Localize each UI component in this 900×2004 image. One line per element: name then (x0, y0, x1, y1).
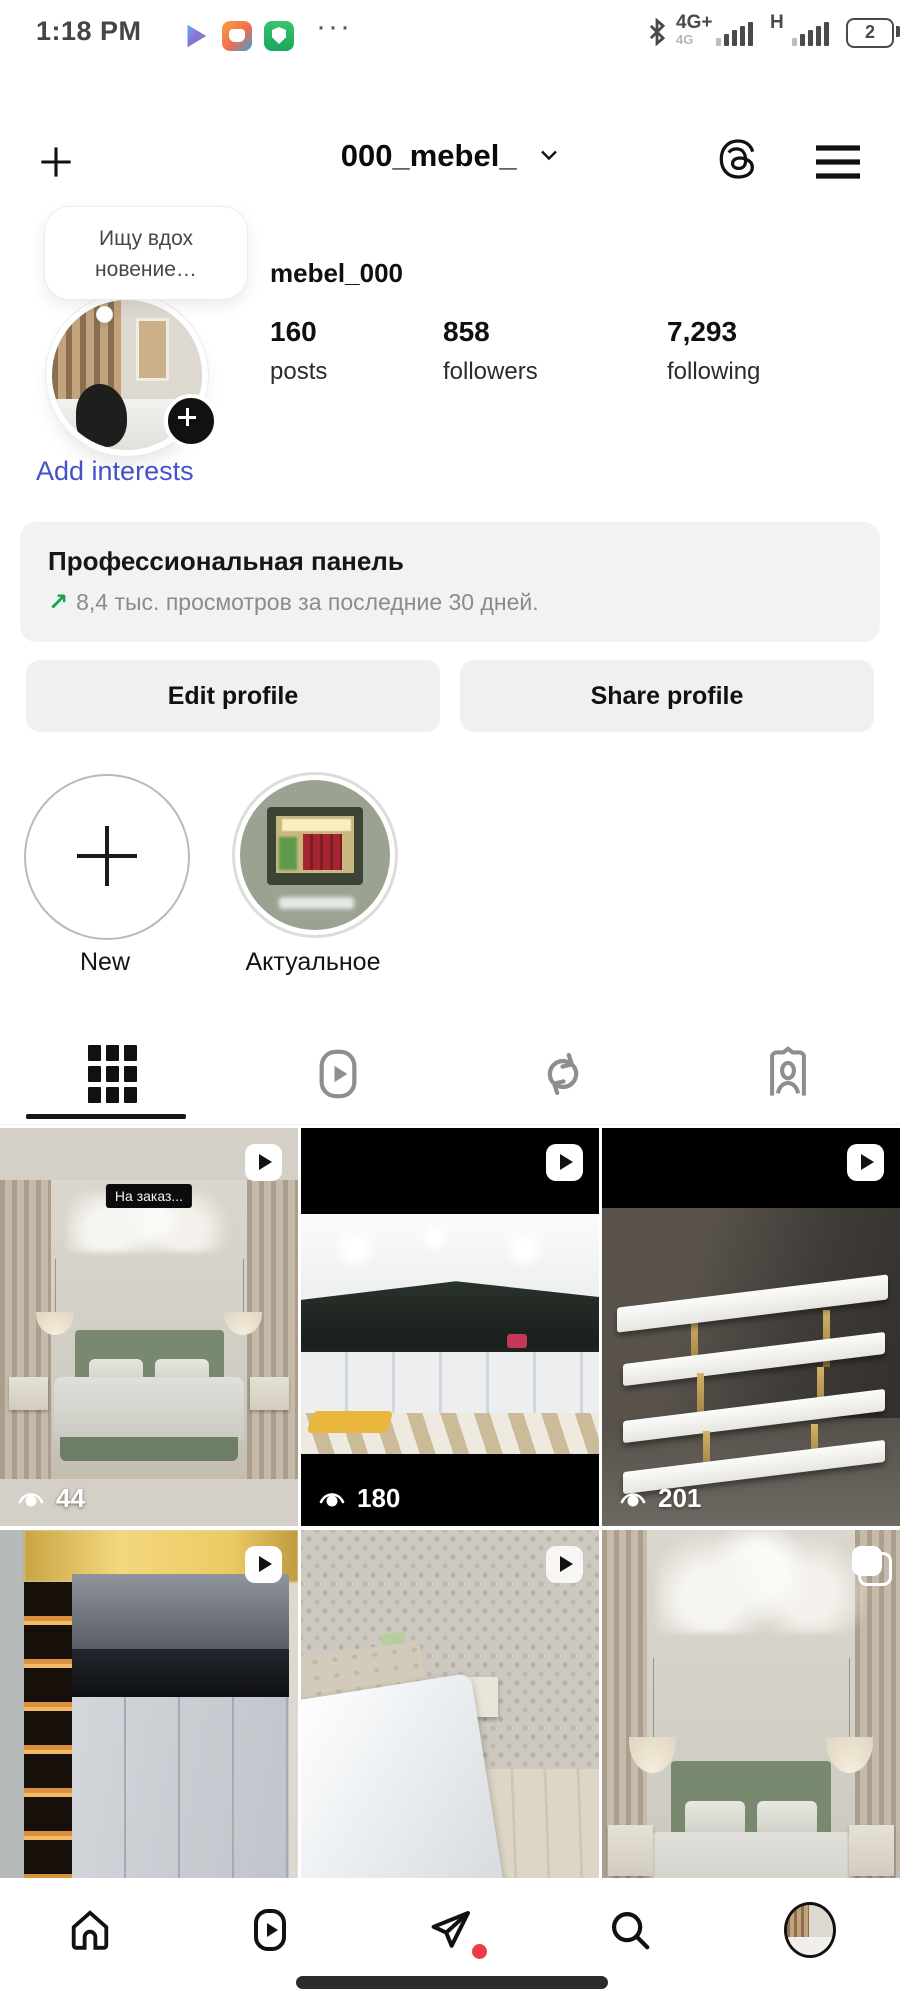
highlight-cover-image (240, 780, 390, 930)
tab-reposts[interactable] (450, 1034, 675, 1114)
play-store-icon (180, 21, 210, 51)
tab-tagged[interactable] (675, 1034, 900, 1114)
play-badge-icon (546, 1546, 583, 1583)
nav-search[interactable] (604, 1904, 656, 1956)
nav-share[interactable] (424, 1904, 476, 1956)
signal-bars-secondary (792, 22, 829, 46)
nav-reels[interactable] (244, 1904, 296, 1956)
status-bar: 1:18 PM ··· 4G+4G H 2 (0, 0, 900, 62)
note-bubble-tail (96, 306, 113, 323)
hamburger-menu-icon[interactable] (812, 142, 864, 182)
battery-icon: 2 (846, 18, 894, 48)
carousel-badge-icon (852, 1546, 884, 1578)
post-tile[interactable] (0, 1530, 298, 1928)
new-highlight-button[interactable] (24, 774, 190, 940)
highlight-label-new: New (24, 948, 186, 977)
active-tab-indicator (26, 1114, 186, 1119)
highlight-aktualnoe[interactable] (232, 772, 398, 938)
highlight-label-aktualnoe: Актуальное (218, 948, 408, 977)
tab-grid[interactable] (0, 1034, 225, 1114)
network-type-primary: 4G+4G (676, 14, 712, 48)
share-profile-button[interactable]: Share profile (460, 660, 874, 732)
clock: 1:18 PM (36, 16, 142, 47)
edit-profile-button[interactable]: Edit profile (26, 660, 440, 732)
reels-icon (248, 1906, 292, 1954)
notification-overflow-icon: ··· (316, 10, 352, 44)
content-tabs (0, 1034, 900, 1124)
post-image (602, 1208, 900, 1526)
display-username: mebel_000 (270, 258, 403, 289)
eye-icon (16, 1487, 46, 1511)
bottom-navigation-bar (0, 1878, 900, 2004)
play-badge-icon (245, 1144, 282, 1181)
repost-icon (536, 1046, 590, 1102)
page-title: 000_mebel_ (341, 138, 517, 173)
search-icon (607, 1907, 653, 1953)
stat-followers[interactable]: 858 followers (443, 316, 538, 386)
stat-posts[interactable]: 160 posts (270, 316, 327, 386)
view-count: 180 (317, 1483, 400, 1514)
post-image (301, 1530, 599, 1928)
gesture-bar[interactable] (296, 1976, 608, 1989)
panel-title: Профессиональная панель (48, 546, 404, 577)
eye-icon (317, 1487, 347, 1511)
professional-dashboard-card[interactable]: Профессиональная панель ↗8,4 тыс. просмо… (20, 522, 880, 642)
profile-avatar (784, 1902, 836, 1958)
post-image (301, 1214, 599, 1454)
note-line-2: новение… (55, 254, 237, 285)
divider (0, 1124, 900, 1125)
instagram-profile-screen: 1:18 PM ··· 4G+4G H 2 000_mebel_ (0, 0, 900, 2004)
chevron-down-icon (539, 148, 559, 162)
post-tile[interactable] (301, 1530, 599, 1928)
nav-home[interactable] (64, 1904, 116, 1956)
threads-icon[interactable] (714, 136, 760, 182)
play-badge-icon (847, 1144, 884, 1181)
play-badge-icon (245, 1546, 282, 1583)
post-tile[interactable]: 201 (602, 1128, 900, 1526)
view-count: 201 (618, 1483, 701, 1514)
profile-account-switcher[interactable]: 000_mebel_ (0, 138, 900, 174)
stat-following[interactable]: 7,293 following (667, 316, 760, 386)
network-type-secondary: H (770, 12, 784, 34)
post-tile[interactable] (602, 1530, 900, 1928)
post-tile[interactable]: На заказ... 44 (0, 1128, 298, 1526)
bluetooth-icon (646, 18, 668, 46)
share-icon (426, 1906, 474, 1954)
play-badge-icon (546, 1144, 583, 1181)
panel-subtitle: ↗8,4 тыс. просмотров за последние 30 дне… (48, 588, 539, 617)
add-interests-link[interactable]: Add interests (36, 456, 194, 487)
profile-note-bubble[interactable]: Ищу вдох новение… (44, 206, 248, 300)
post-image (602, 1530, 900, 1928)
signal-bars-primary (716, 22, 753, 46)
eye-icon (618, 1487, 648, 1511)
reels-icon (312, 1046, 364, 1102)
post-tile[interactable]: 180 (301, 1128, 599, 1526)
post-caption-overlay: На заказ... (106, 1184, 192, 1208)
trend-arrow-icon: ↗ (48, 589, 68, 616)
grid-icon (88, 1045, 137, 1103)
note-line-1: Ищу вдох (55, 223, 237, 254)
messenger-app-icon (222, 21, 252, 51)
post-image (0, 1530, 298, 1928)
security-app-icon (264, 21, 294, 51)
tab-reels[interactable] (225, 1034, 450, 1114)
home-icon (67, 1907, 113, 1953)
view-count: 44 (16, 1483, 85, 1514)
post-image (0, 1180, 298, 1479)
notification-dot (472, 1944, 487, 1959)
tagged-icon (763, 1046, 813, 1102)
nav-profile[interactable] (784, 1904, 836, 1956)
add-story-plus-icon[interactable] (164, 394, 218, 448)
